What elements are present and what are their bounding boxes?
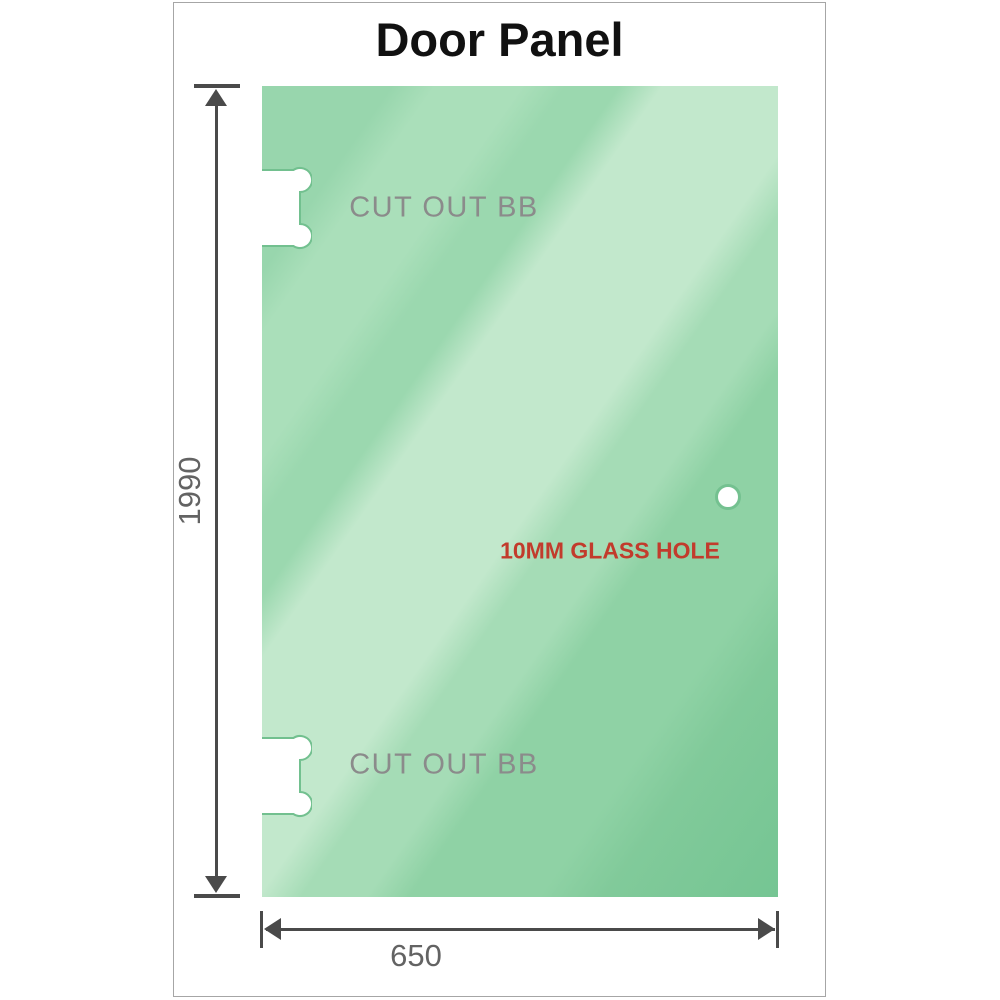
arrow-left-icon <box>264 918 281 940</box>
hinge-cutout-bottom-icon <box>262 732 312 820</box>
hinge-cutout-top-icon <box>262 164 312 252</box>
height-dimension-value: 1990 <box>172 457 208 526</box>
width-dimension-right-tick <box>776 911 779 948</box>
glass-hole-icon <box>715 484 741 510</box>
arrow-right-icon <box>758 918 775 940</box>
arrow-up-icon <box>205 89 227 106</box>
diagram-canvas: Door Panel CUT OUT BB CUT OUT BB 10MM GL… <box>0 0 1000 1000</box>
page-title: Door Panel <box>173 13 826 67</box>
width-dimension-left-tick <box>260 911 263 948</box>
arrow-down-icon <box>205 876 227 893</box>
cutout-top-label: CUT OUT BB <box>349 192 539 225</box>
width-dimension-value: 650 <box>390 938 442 974</box>
width-dimension-line <box>266 928 775 931</box>
glass-hole-label: 10MM GLASS HOLE <box>500 538 720 565</box>
height-dimension-bottom-cap <box>194 894 240 898</box>
cutout-bottom-label: CUT OUT BB <box>349 749 539 782</box>
height-dimension-line <box>215 95 218 885</box>
height-dimension-top-cap <box>194 84 240 88</box>
